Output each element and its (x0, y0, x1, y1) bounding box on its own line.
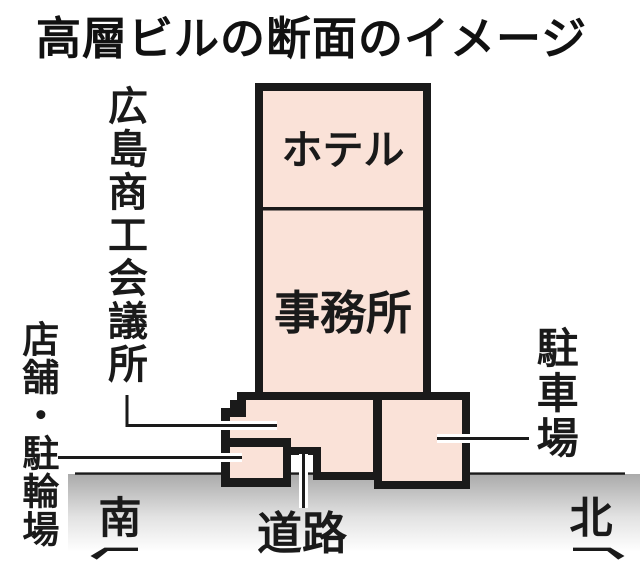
hotel-label: ホテル (263, 129, 423, 172)
shops-annex (221, 438, 291, 487)
south-label: 南 (90, 497, 150, 542)
north-label: 北 (561, 497, 621, 542)
road-label: 道路 (242, 510, 362, 557)
chamber-label: 広島商工会議所 (103, 85, 145, 386)
page-title: 高層ビルの断面のイメージ (36, 2, 636, 67)
office-label: 事務所 (263, 289, 423, 337)
floor-divider-line (263, 207, 423, 211)
building-cross-section (0, 0, 640, 561)
shops-label: 店舗・駐輪場 (17, 320, 56, 548)
diagram-canvas: 高層ビルの断面のイメージ 広島商工会議所 店舗・駐輪場 駐車場 ホテル 事務所 … (0, 0, 640, 561)
parking-label: 駐車場 (532, 326, 576, 461)
